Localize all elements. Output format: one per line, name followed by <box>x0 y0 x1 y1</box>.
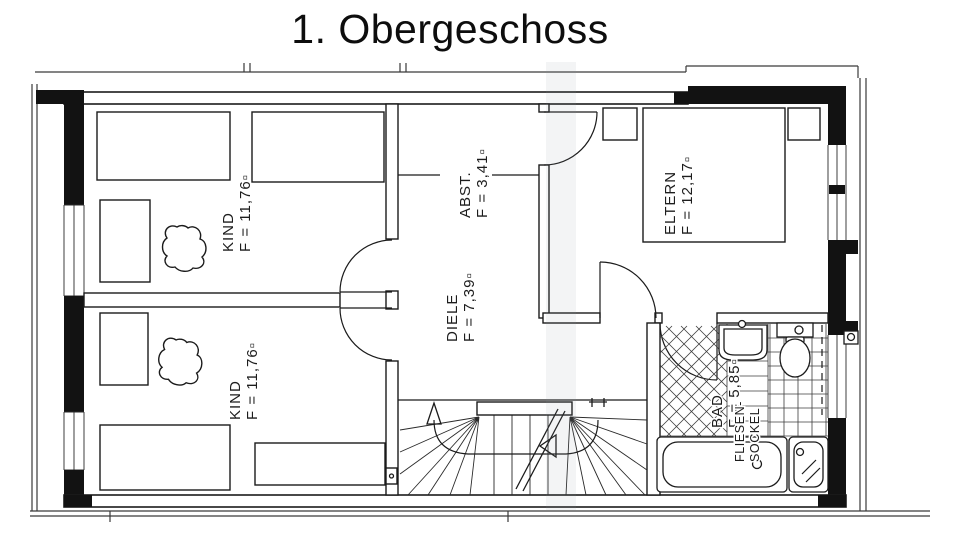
tile-skirting-line2: SOCKEL <box>748 408 762 462</box>
door-kind-lower <box>340 308 392 360</box>
floor-plan-page: 1. Obergeschoss <box>0 0 960 540</box>
room-name: BAD <box>709 394 726 428</box>
room-area: F = 12,17▫ <box>679 156 696 235</box>
room-name: ELTERN <box>662 171 679 235</box>
dresser-kind-lower <box>255 443 385 485</box>
tile-skirting-label: FLIESEN- SOCKEL <box>733 401 762 462</box>
door-eltern <box>600 262 656 318</box>
room-label-kind-upper: KIND F = 11,76▫ <box>220 174 254 252</box>
nightstand-left <box>603 108 637 140</box>
room-area: F = 11,76▫ <box>237 174 254 252</box>
nightstand-right <box>788 108 820 140</box>
washbasin <box>719 321 767 361</box>
room-name: ABST. <box>457 171 474 218</box>
room-name: KIND <box>227 380 244 420</box>
room-area: F = 7,39▫ <box>461 272 478 342</box>
desk-kind-lower <box>100 313 148 385</box>
bathtub <box>657 437 787 492</box>
window-right-bad <box>828 335 846 418</box>
room-label-abstellraum: ABST. F = 3,41▫ <box>457 148 491 218</box>
room-label-kind-lower: KIND F = 11,76▫ <box>227 342 261 420</box>
window-right-eltern <box>828 145 846 240</box>
dresser-knob <box>390 474 394 478</box>
room-area: F = 3,41▫ <box>474 148 491 218</box>
wardrobe-kind-upper <box>252 112 384 182</box>
stair-treads <box>400 415 647 495</box>
window-left-upper <box>64 205 84 296</box>
window-left-lower <box>64 412 84 470</box>
room-name: DIELE <box>444 294 461 342</box>
door-bad <box>660 323 717 380</box>
chair-kind-upper <box>163 226 206 272</box>
bed-kind-lower <box>100 425 230 490</box>
utility-connection <box>844 331 858 344</box>
door-kind-upper <box>340 240 392 292</box>
bed-kind-upper <box>97 112 230 180</box>
tile-skirting-line1: FLIESEN- <box>733 401 747 462</box>
staircase <box>398 398 647 495</box>
floor-plan-drawing: KIND F = 11,76▫ KIND F = 11,76▫ ABST. F … <box>0 0 960 540</box>
room-name: KIND <box>220 212 237 252</box>
room-label-diele: DIELE F = 7,39▫ <box>444 272 478 342</box>
desk-kind-upper <box>100 200 150 282</box>
toilet <box>777 323 813 377</box>
chair-kind-lower <box>155 337 204 388</box>
room-area: F = 11,76▫ <box>244 342 261 420</box>
shower <box>789 437 828 492</box>
scan-streak <box>546 62 576 510</box>
